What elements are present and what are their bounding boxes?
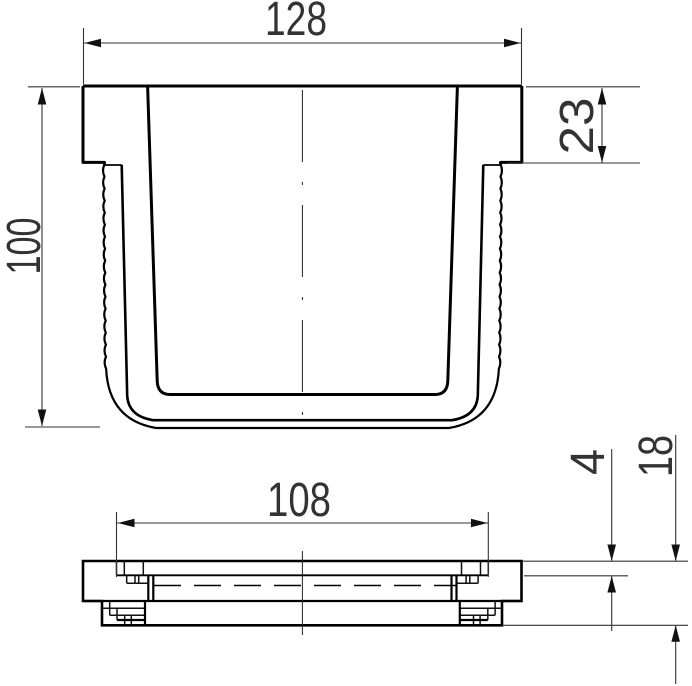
lid-tab-mid-right [457, 575, 479, 583]
arrowhead-up [607, 576, 616, 593]
arrowhead-down [671, 545, 680, 562]
dimension-value-23: 23 [551, 98, 604, 155]
lid-tab-mid-left [127, 575, 149, 583]
arrowhead-left [85, 39, 102, 48]
drawing-canvas: 128 23 100 [0, 0, 692, 686]
arrowhead-down [38, 410, 47, 427]
pot-rim-left [83, 86, 104, 165]
technical-drawing-sheet: 128 23 100 [0, 0, 692, 686]
arrowhead-up [38, 88, 47, 105]
dimension-value-128: 128 [265, 0, 327, 46]
arrowhead-right [504, 39, 521, 48]
dimension-total-height-100: 100 [0, 87, 100, 427]
pot-rim-right [501, 86, 522, 165]
lid-tab-lower-right [460, 601, 502, 625]
arrowhead-right [471, 519, 488, 528]
lid-tab-upper-left [117, 561, 144, 575]
lid-plug-wall-right [452, 575, 457, 601]
arrowhead-left [118, 519, 135, 528]
dimension-value-18: 18 [630, 435, 683, 477]
lid-view [83, 551, 522, 635]
front-view [83, 86, 522, 429]
lid-tab-upper-right [462, 561, 489, 575]
arrowhead-up [671, 625, 680, 642]
lid-plug-wall-left [148, 575, 153, 601]
dimension-top-width-128: 128 [84, 0, 522, 84]
dimension-value-108: 108 [267, 474, 331, 527]
reference-line [523, 561, 688, 576]
dimension-value-100: 100 [0, 218, 51, 275]
dimension-rim-height-23: 23 [507, 87, 640, 163]
lid-tab-lower-left [102, 601, 145, 625]
dimension-value-4: 4 [562, 449, 615, 475]
arrowhead-down [607, 545, 616, 562]
